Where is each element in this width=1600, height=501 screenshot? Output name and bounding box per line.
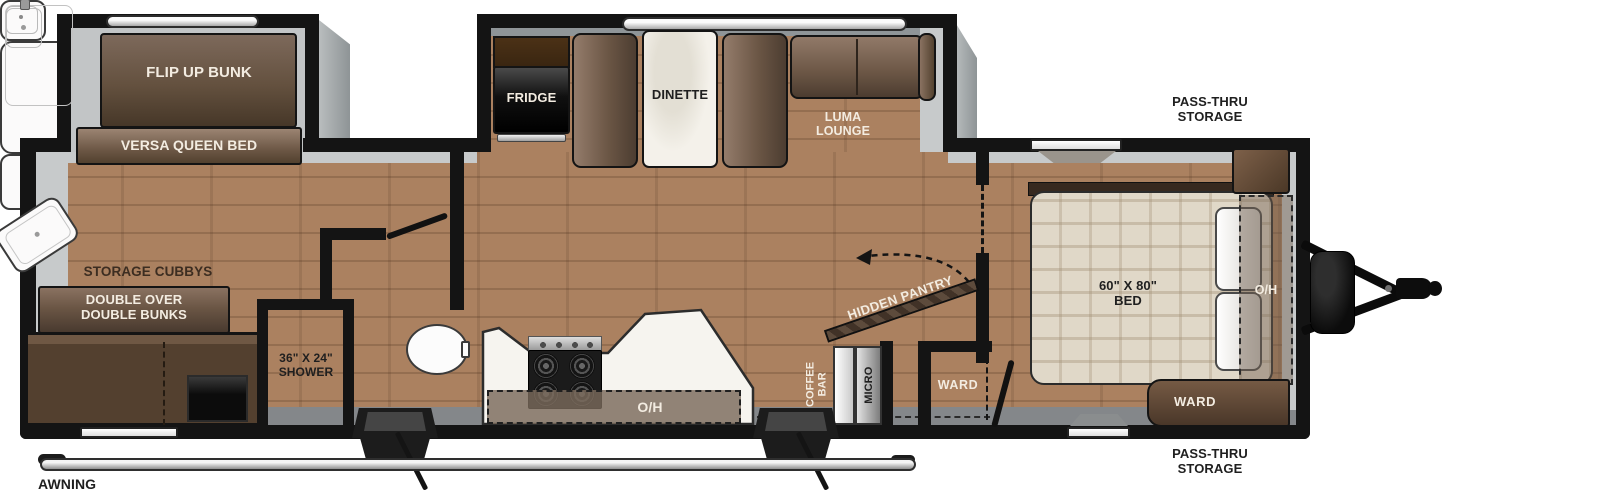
bunk-slideout-topper <box>106 15 259 28</box>
rear-cabinet-counter-edge <box>28 335 257 344</box>
wall-sink-nook-top <box>320 228 386 240</box>
bedroom-top-window <box>1030 139 1122 151</box>
wall-bath-right <box>450 140 464 310</box>
coffee-bar-counter <box>833 346 855 425</box>
stove-burner-1 <box>533 353 559 379</box>
micro-label: MICRO <box>863 350 875 420</box>
bed-label: 60" X 80" BED <box>1068 279 1188 308</box>
propane-tank <box>1310 251 1355 334</box>
pantry-swing-arrowhead <box>856 249 872 265</box>
bedroom-bottom-window <box>1067 427 1130 438</box>
rear-bottom-window <box>80 427 178 438</box>
dinette-label: DINETTE <box>644 88 716 103</box>
dinette-bench-right <box>722 33 788 168</box>
luma-lounge-cushion-divider <box>856 39 858 95</box>
awning-label: AWNING <box>38 477 122 493</box>
hitch-coupler <box>1396 278 1432 299</box>
wall-shower-top <box>257 299 354 310</box>
rear-appliance <box>187 375 248 422</box>
bunk-slideout-wall-right <box>305 14 319 152</box>
coffee-bar-label: COFFEE BAR <box>805 349 830 419</box>
luma-lounge-sofa <box>790 35 924 99</box>
kitchen-slide-wall-right <box>943 14 957 152</box>
versa-queen-bed-label: VERSA QUEEN BED <box>88 138 290 154</box>
hitch-jack-dot <box>1385 285 1392 292</box>
fridge-counter <box>493 36 570 68</box>
shower-label: 36" X 24" SHOWER <box>266 352 346 379</box>
stove-burner-2 <box>569 353 595 379</box>
fridge-shelf <box>497 134 566 142</box>
awning-rail <box>40 458 916 471</box>
bath-sink-drain-icon <box>21 25 26 30</box>
entry-step-1-tread <box>364 412 426 431</box>
kitchen-slide-topper <box>622 17 907 31</box>
rear-cabinet-divider-dashed <box>163 342 165 425</box>
bath-sink-faucet-icon <box>20 0 30 10</box>
kitchen-overhead-label: O/H <box>618 400 682 416</box>
double-bunks-label: DOUBLE OVER DOUBLE BUNKS <box>48 293 220 322</box>
toilet <box>406 324 468 375</box>
dinette-bench-left <box>572 33 638 168</box>
kitchen-overhead-cabinet <box>487 390 741 424</box>
wall-bedroom-divider-upper <box>976 138 989 185</box>
bedroom-divider-dashed <box>981 185 984 253</box>
wall-sink-nook-left <box>320 228 332 308</box>
luma-lounge-armrest <box>918 33 936 101</box>
kitchen-slide-wall-left <box>477 14 491 152</box>
pass-thru-storage-bottom-label: PASS-THRU STORAGE <box>1130 447 1290 476</box>
bedroom-corner-cabinet <box>1232 148 1290 194</box>
fridge-label: FRIDGE <box>495 91 568 106</box>
ward-hall-label: WARD <box>918 378 998 392</box>
toilet-tank <box>461 341 470 358</box>
luma-lounge-label: LUMA LOUNGE <box>803 110 883 138</box>
hitch-coupler-nub <box>1428 281 1442 296</box>
wall-right-front <box>1296 138 1310 439</box>
flip-up-bunk-label: FLIP UP BUNK <box>110 65 288 82</box>
storage-cubbys-label: STORAGE CUBBYS <box>58 264 238 279</box>
bedroom-overhead-label: O/H <box>1240 283 1292 297</box>
floor-plan: FLIP UP BUNK VERSA QUEEN BED STORAGE CUB… <box>0 0 1600 501</box>
bedroom-ward-label: WARD <box>1155 395 1235 410</box>
pass-thru-storage-top-label: PASS-THRU STORAGE <box>1130 95 1290 124</box>
